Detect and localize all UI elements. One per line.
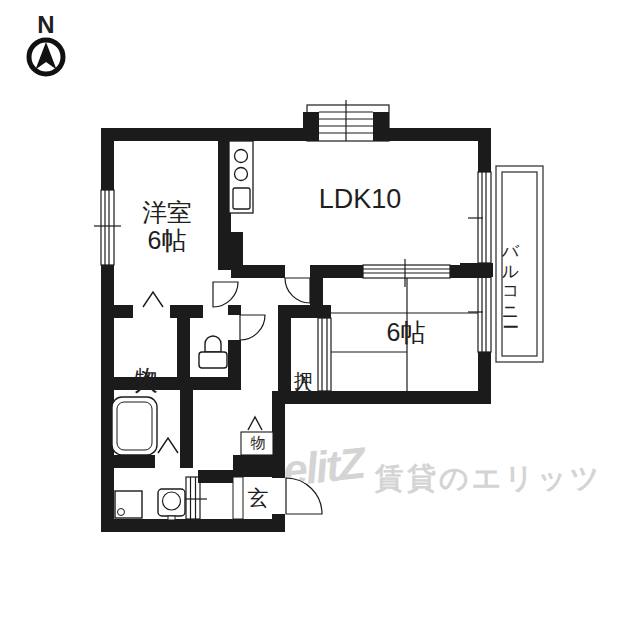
western-room-door-arc — [213, 282, 238, 307]
ldk-door-arc — [285, 278, 310, 303]
bathroom-folding-door-icon — [158, 438, 178, 453]
room-label-tatami-room: 6帖 — [387, 318, 426, 346]
room-label-ldk: LDK10 — [319, 184, 402, 214]
room-label-entrance: 玄 — [248, 486, 269, 510]
room-label-balcony: バルコニー — [501, 216, 520, 336]
floorplan-page: elitZ 賃貸のエリッツ — [0, 0, 640, 640]
kitchen-counter — [229, 141, 253, 213]
stove-burner-icon — [235, 150, 248, 163]
compass-north-label: N — [37, 12, 54, 39]
room-label-western-room: 洋室 6帖 — [142, 198, 192, 254]
closet-folding-door-icon — [143, 292, 163, 307]
toilet-door-arc — [240, 315, 265, 340]
kitchen-sink-icon — [233, 188, 250, 209]
entrance-door-arc — [286, 478, 322, 514]
storage-folding-door-icon — [248, 417, 262, 430]
stove-burner-icon — [235, 168, 248, 181]
room-label-storage: 物入 — [133, 321, 159, 381]
floorplan-drawing — [0, 0, 640, 640]
compass-icon — [29, 40, 63, 74]
room-label-small-storage: 物 — [251, 435, 266, 452]
entrance-step — [233, 477, 243, 519]
room-label-oshiire: 押入 — [293, 322, 314, 394]
toilet-icon — [199, 336, 227, 368]
